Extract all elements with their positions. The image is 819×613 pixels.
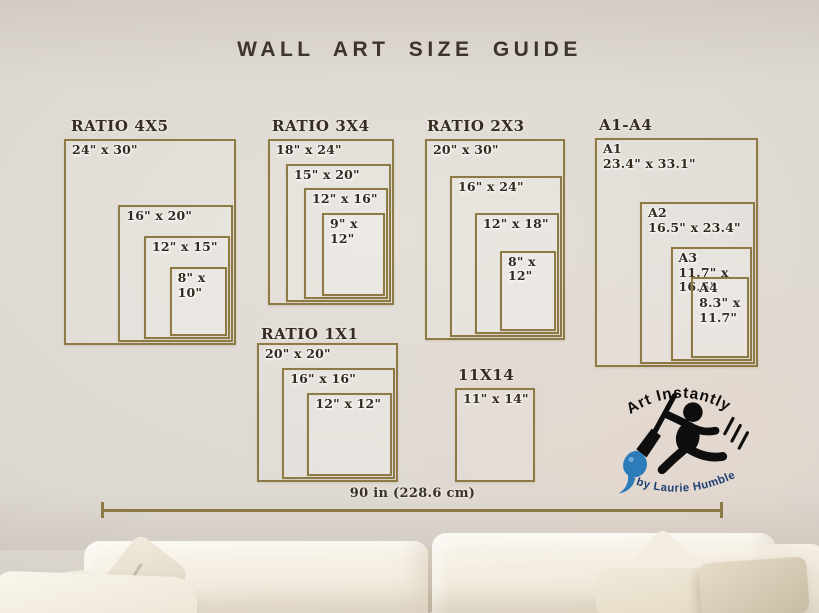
size-frame-9x12: 9" x 12" — [322, 213, 385, 296]
size-frame-8x10: 8" x 10" — [170, 267, 227, 336]
size-label: 18" x 24" — [276, 143, 342, 158]
size-label: 16" x 16" — [290, 372, 356, 387]
group-header-ratio-1x1: RATIO 1X1 — [261, 325, 359, 343]
size-frame-11x14: 11" x 14" — [455, 388, 535, 482]
group-header-ratio-2x3: RATIO 2X3 — [427, 117, 525, 135]
size-label: 12" x 15" — [152, 240, 218, 255]
logo-arc-text-bottom: by Laurie Humble — [635, 469, 737, 495]
group-header-ratio-4x5: RATIO 4X5 — [71, 117, 169, 135]
logo-arc-text-top: Art Instantly — [624, 385, 734, 418]
size-label: 12" x 16" — [312, 192, 378, 207]
size-label: 9" x 12" — [330, 217, 383, 247]
sofa-pillow-right-dark — [698, 556, 810, 613]
size-label: A1 23.4" x 33.1" — [603, 142, 696, 172]
size-label: 12" x 12" — [315, 397, 381, 412]
size-label: 8" x 12" — [508, 255, 554, 285]
size-label: 15" x 20" — [294, 168, 360, 183]
wall-art-size-guide-poster: WALL ART SIZE GUIDE RATIO 4X524" x 30"16… — [0, 0, 819, 613]
size-label: 20" x 20" — [265, 347, 331, 362]
sofa-pillow-left-front — [0, 570, 198, 613]
size-frame-8.3x11.7: A4 8.3" x 11.7" — [691, 277, 749, 358]
art-instantly-logo: Art Instantly by Laurie Humble — [592, 372, 767, 511]
size-label: 24" x 30" — [72, 143, 138, 158]
page-title: WALL ART SIZE GUIDE — [0, 38, 819, 62]
size-label: A2 16.5" x 23.4" — [648, 206, 741, 236]
size-label: A4 8.3" x 11.7" — [699, 281, 740, 325]
group-header-a1-a4: A1-A4 — [599, 116, 652, 134]
size-label: 11" x 14" — [463, 392, 529, 407]
group-header-ratio-3x4: RATIO 3X4 — [272, 117, 370, 135]
size-label: 16" x 20" — [126, 209, 192, 224]
size-label: 16" x 24" — [458, 180, 524, 195]
speed-lines-icon — [725, 418, 748, 448]
size-frame-8x12: 8" x 12" — [500, 251, 556, 331]
figure-head — [683, 402, 703, 422]
svg-text:by Laurie Humble: by Laurie Humble — [635, 469, 737, 495]
size-label: 20" x 30" — [433, 143, 499, 158]
svg-text:Art Instantly: Art Instantly — [624, 385, 734, 418]
group-header-11x14: 11X14 — [458, 366, 514, 384]
size-label: 12" x 18" — [483, 217, 549, 232]
size-frame-12x12: 12" x 12" — [307, 393, 392, 476]
size-label: 8" x 10" — [178, 271, 225, 301]
